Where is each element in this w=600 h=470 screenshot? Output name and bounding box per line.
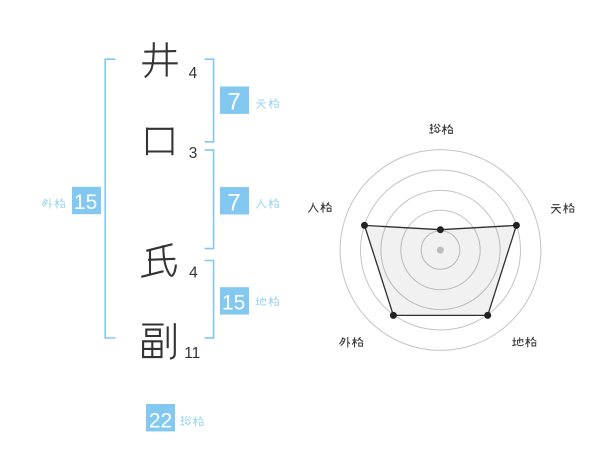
svg-text:11: 11 xyxy=(184,345,200,362)
svg-text:15: 15 xyxy=(74,191,97,214)
svg-text:7: 7 xyxy=(227,89,240,116)
svg-text:15: 15 xyxy=(222,291,245,314)
svg-text:7: 7 xyxy=(227,189,240,216)
svg-text:4: 4 xyxy=(189,265,198,282)
svg-text:4: 4 xyxy=(189,65,198,82)
svg-text:22: 22 xyxy=(149,409,172,432)
svg-text:3: 3 xyxy=(189,145,198,162)
